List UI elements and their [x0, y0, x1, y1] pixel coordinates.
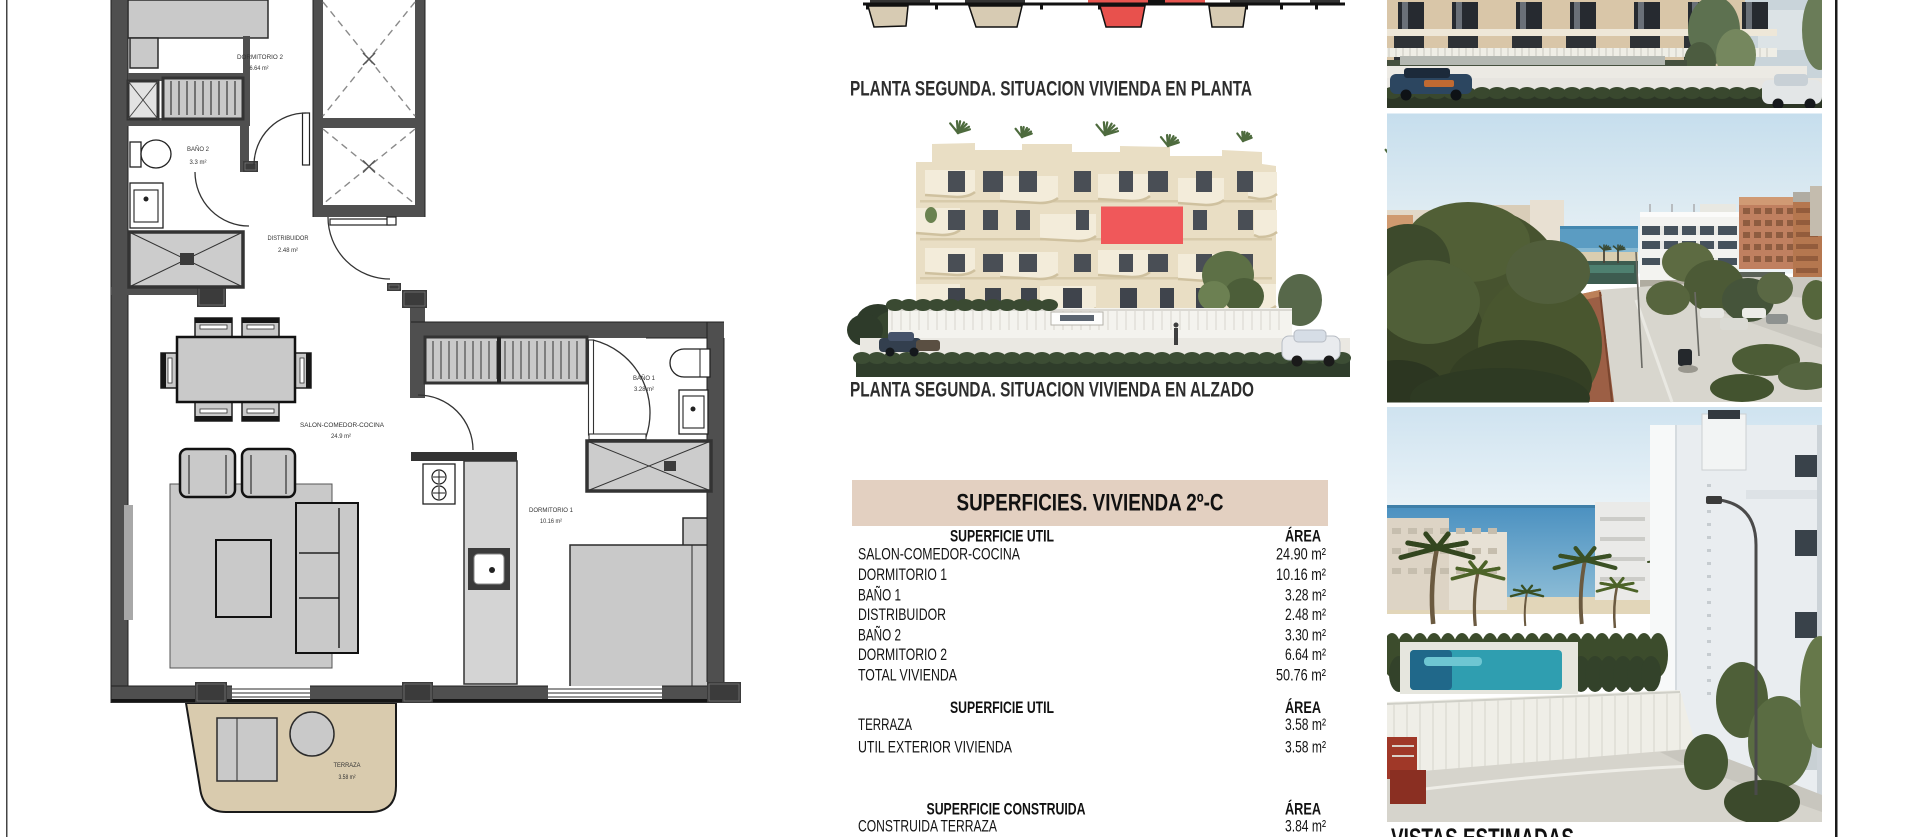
svg-text:VISTAS ESTIMADAS: VISTAS ESTIMADAS: [1391, 823, 1574, 837]
svg-text:DISTRIBUIDOR: DISTRIBUIDOR: [858, 605, 946, 624]
svg-text:BAÑO 2: BAÑO 2: [858, 626, 901, 645]
svg-text:2.48 m²: 2.48 m²: [1285, 605, 1326, 624]
svg-text:TERRAZA: TERRAZA: [858, 715, 912, 734]
svg-text:3.30 m²: 3.30 m²: [1285, 626, 1326, 645]
svg-text:10.16 m²: 10.16 m²: [1276, 565, 1326, 584]
svg-text:DISTRIBUIDOR: DISTRIBUIDOR: [268, 235, 309, 242]
svg-text:DORMITORIO 2: DORMITORIO 2: [858, 645, 947, 664]
svg-text:TERRAZA: TERRAZA: [334, 762, 362, 769]
svg-text:3.58 m²: 3.58 m²: [1285, 715, 1326, 734]
svg-text:SALON-COMEDOR-COCINA: SALON-COMEDOR-COCINA: [300, 422, 385, 429]
svg-text:3.58 m²: 3.58 m²: [339, 775, 356, 781]
svg-text:SUPERFICIES. VIVIENDA 2º-C: SUPERFICIES. VIVIENDA 2º-C: [957, 490, 1224, 517]
svg-text:SALON-COMEDOR-COCINA: SALON-COMEDOR-COCINA: [858, 545, 1020, 564]
svg-text:3.28 m²: 3.28 m²: [634, 387, 654, 393]
svg-text:DORMITORIO 1: DORMITORIO 1: [858, 565, 947, 584]
svg-text:ÁREA: ÁREA: [1285, 527, 1321, 546]
svg-text:DORMITORIO 1: DORMITORIO 1: [529, 507, 573, 514]
svg-text:DORMITORIO 2: DORMITORIO 2: [237, 54, 283, 61]
svg-text:SUPERFICIE UTIL: SUPERFICIE UTIL: [950, 527, 1054, 546]
svg-text:6.64 m²: 6.64 m²: [1285, 645, 1326, 664]
svg-text:BAÑO 2: BAÑO 2: [187, 144, 209, 153]
svg-text:3.84 m²: 3.84 m²: [1285, 816, 1326, 835]
svg-text:50.76 m²: 50.76 m²: [1276, 666, 1326, 685]
svg-text:6.64 m²: 6.64 m²: [250, 66, 269, 72]
svg-text:3.58 m²: 3.58 m²: [1285, 738, 1326, 757]
svg-text:PLANTA SEGUNDA. SITUACION VIVI: PLANTA SEGUNDA. SITUACION VIVIENDA EN PL…: [850, 78, 1252, 101]
svg-text:3.28 m²: 3.28 m²: [1285, 586, 1326, 605]
svg-text:PLANTA SEGUNDA. SITUACION VIVI: PLANTA SEGUNDA. SITUACION VIVIENDA EN AL…: [850, 379, 1254, 402]
svg-text:TOTAL VIVIENDA: TOTAL VIVIENDA: [858, 666, 957, 685]
svg-text:UTIL EXTERIOR VIVIENDA: UTIL EXTERIOR VIVIENDA: [858, 738, 1012, 757]
svg-text:10.16 m²: 10.16 m²: [540, 519, 562, 525]
svg-text:CONSTRUIDA TERRAZA: CONSTRUIDA TERRAZA: [858, 816, 997, 835]
svg-text:24.9 m²: 24.9 m²: [331, 434, 351, 440]
svg-text:24.90 m²: 24.90 m²: [1276, 545, 1326, 564]
svg-text:BAÑO 1: BAÑO 1: [858, 586, 901, 605]
svg-text:BAÑO 1: BAÑO 1: [633, 373, 655, 382]
svg-text:3.3 m²: 3.3 m²: [190, 160, 207, 166]
svg-text:2.48 m²: 2.48 m²: [278, 248, 298, 254]
svg-text:SUPERFICIE UTIL: SUPERFICIE UTIL: [950, 698, 1054, 717]
